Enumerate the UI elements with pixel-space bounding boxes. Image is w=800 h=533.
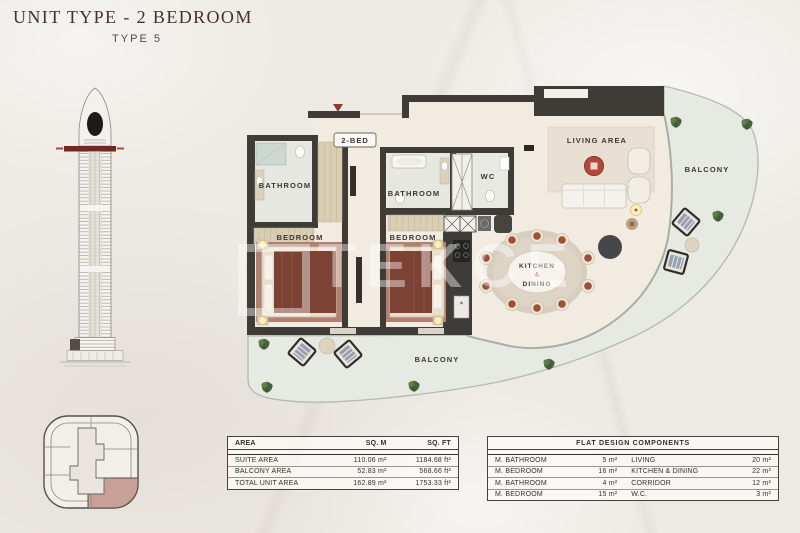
area-table-row: BALCONY AREA 52.83 m² 568.66 ft² (228, 466, 458, 478)
tower-crown (79, 88, 111, 146)
area-table-row: TOTAL UNIT AREA 162.89 m² 1753.33 ft² (228, 478, 458, 489)
brand-watermark: TEKCE (318, 236, 578, 298)
components-table-title: FLAT DESIGN COMPONENTS (488, 437, 778, 450)
brochure-page: UNIT TYPE - 2 BEDROOM TYPE 5 (0, 0, 800, 533)
component-label: KITCHEN & DINING (624, 466, 728, 478)
wardrobe-middle (388, 215, 446, 231)
building-elevation (50, 60, 140, 380)
component-value: 15 m² (578, 489, 624, 500)
component-label: M. BEDROOM (488, 466, 578, 478)
room-label-bedroom-left: BEDROOM (277, 233, 324, 242)
tower-body (79, 152, 111, 338)
tv-console (524, 145, 534, 151)
area-row-label: TOTAL UNIT AREA (228, 478, 334, 489)
side-table (685, 238, 699, 252)
unit-badge-label: 2-BED (341, 136, 369, 145)
side-table (319, 338, 335, 354)
ottoman (598, 235, 622, 259)
balcony-door-left (330, 328, 356, 334)
skylight (544, 89, 588, 98)
component-value: 5 m² (578, 455, 624, 467)
components-table-header: FLAT DESIGN COMPONENTS (488, 437, 778, 450)
components-table: FLAT DESIGN COMPONENTS M. BATHROOM 5 m² … (487, 436, 779, 501)
bedside-lamp-icon (434, 317, 442, 325)
page-title: UNIT TYPE - 2 BEDROOM (13, 7, 253, 28)
area-row-sqft: 568.66 ft² (394, 466, 458, 478)
area-row-sqft: 1753.33 ft² (394, 478, 458, 489)
area-row-sqm: 52.83 m² (334, 466, 394, 478)
component-value: 4 m² (578, 478, 624, 490)
component-label: M. BATHROOM (488, 455, 578, 467)
brand-watermark-logo-icon (238, 244, 310, 316)
entrance-arrow-icon (333, 104, 343, 112)
component-value: 3 m² (729, 489, 778, 500)
room-label-wc: WC (481, 172, 496, 181)
component-label: CORRIDOR (624, 478, 728, 490)
component-label: M. BEDROOM (488, 489, 578, 500)
corridor-door-leaf (350, 166, 356, 196)
room-label-bathroom-left: BATHROOM (259, 181, 311, 190)
area-table: AREA SQ. M SQ. FT SUITE AREA 110.06 m² 1… (227, 436, 459, 490)
component-label: M. BATHROOM (488, 478, 578, 490)
components-table-row: M. BATHROOM 4 m² CORRIDOR 12 m² (488, 478, 778, 490)
area-header-sqft: SQ. FT (394, 437, 458, 450)
area-table-row: SUITE AREA 110.06 m² 1184.68 ft² (228, 455, 458, 467)
balcony-door-right (418, 328, 444, 334)
area-table-header: AREA SQ. M SQ. FT (228, 437, 458, 450)
components-table-row: M. BEDROOM 15 m² W.C. 3 m² (488, 489, 778, 500)
component-value: 12 m² (729, 478, 778, 490)
area-row-label: SUITE AREA (228, 455, 334, 467)
tower-base (60, 338, 130, 367)
component-label: W.C. (624, 489, 728, 500)
area-header-sqm: SQ. M (334, 437, 394, 450)
components-table-row: M. BEDROOM 16 m² KITCHEN & DINING 22 m² (488, 466, 778, 478)
components-table-row: M. BATHROOM 5 m² LIVING 20 m² (488, 455, 778, 467)
room-label-bathroom-middle: BATHROOM (388, 189, 440, 198)
area-row-label: BALCONY AREA (228, 466, 334, 478)
sofa (562, 184, 626, 208)
hall-closet (318, 142, 342, 222)
bedside-lamp-icon (259, 317, 267, 325)
armchair (628, 177, 650, 203)
page-subtitle: TYPE 5 (37, 33, 237, 45)
room-label-balcony-right: BALCONY (685, 165, 730, 174)
armchair (628, 148, 650, 174)
tower-level-band (56, 146, 124, 152)
component-value: 22 m² (729, 466, 778, 478)
component-label: LIVING (624, 455, 728, 467)
area-row-sqft: 1184.68 ft² (394, 455, 458, 467)
floor-key-plan (38, 410, 146, 518)
room-label-balcony-bottom: BALCONY (415, 355, 460, 364)
room-label-living-area: LIVING AREA (567, 136, 627, 145)
component-value: 20 m² (729, 455, 778, 467)
component-value: 16 m² (578, 466, 624, 478)
area-row-sqm: 110.06 m² (334, 455, 394, 467)
kitchen-appliances (444, 215, 512, 233)
unit-badge: 2-BED (334, 133, 376, 147)
area-header-name: AREA (228, 437, 334, 450)
area-row-sqm: 162.89 m² (334, 478, 394, 489)
